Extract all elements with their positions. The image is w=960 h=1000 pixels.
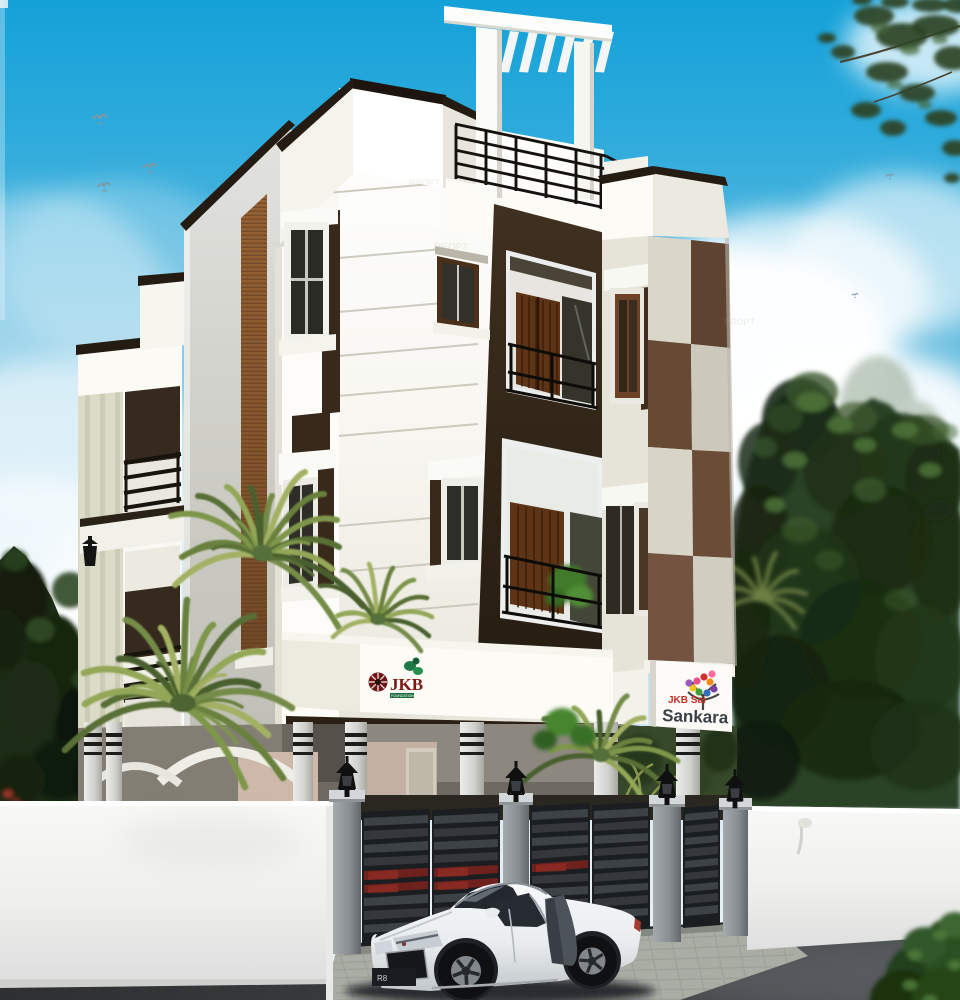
svg-text:Sankara: Sankara <box>662 706 729 727</box>
svg-text:PROPT: PROPT <box>434 242 468 253</box>
svg-text:PROPT: PROPT <box>409 178 441 188</box>
svg-text:JKB Sai: JKB Sai <box>668 695 706 706</box>
svg-text:PROPT: PROPT <box>724 317 756 327</box>
svg-text:JKB: JKB <box>390 675 423 694</box>
svg-text:FOUNDATIONS: FOUNDATIONS <box>391 694 417 698</box>
svg-text:R8: R8 <box>377 974 388 983</box>
